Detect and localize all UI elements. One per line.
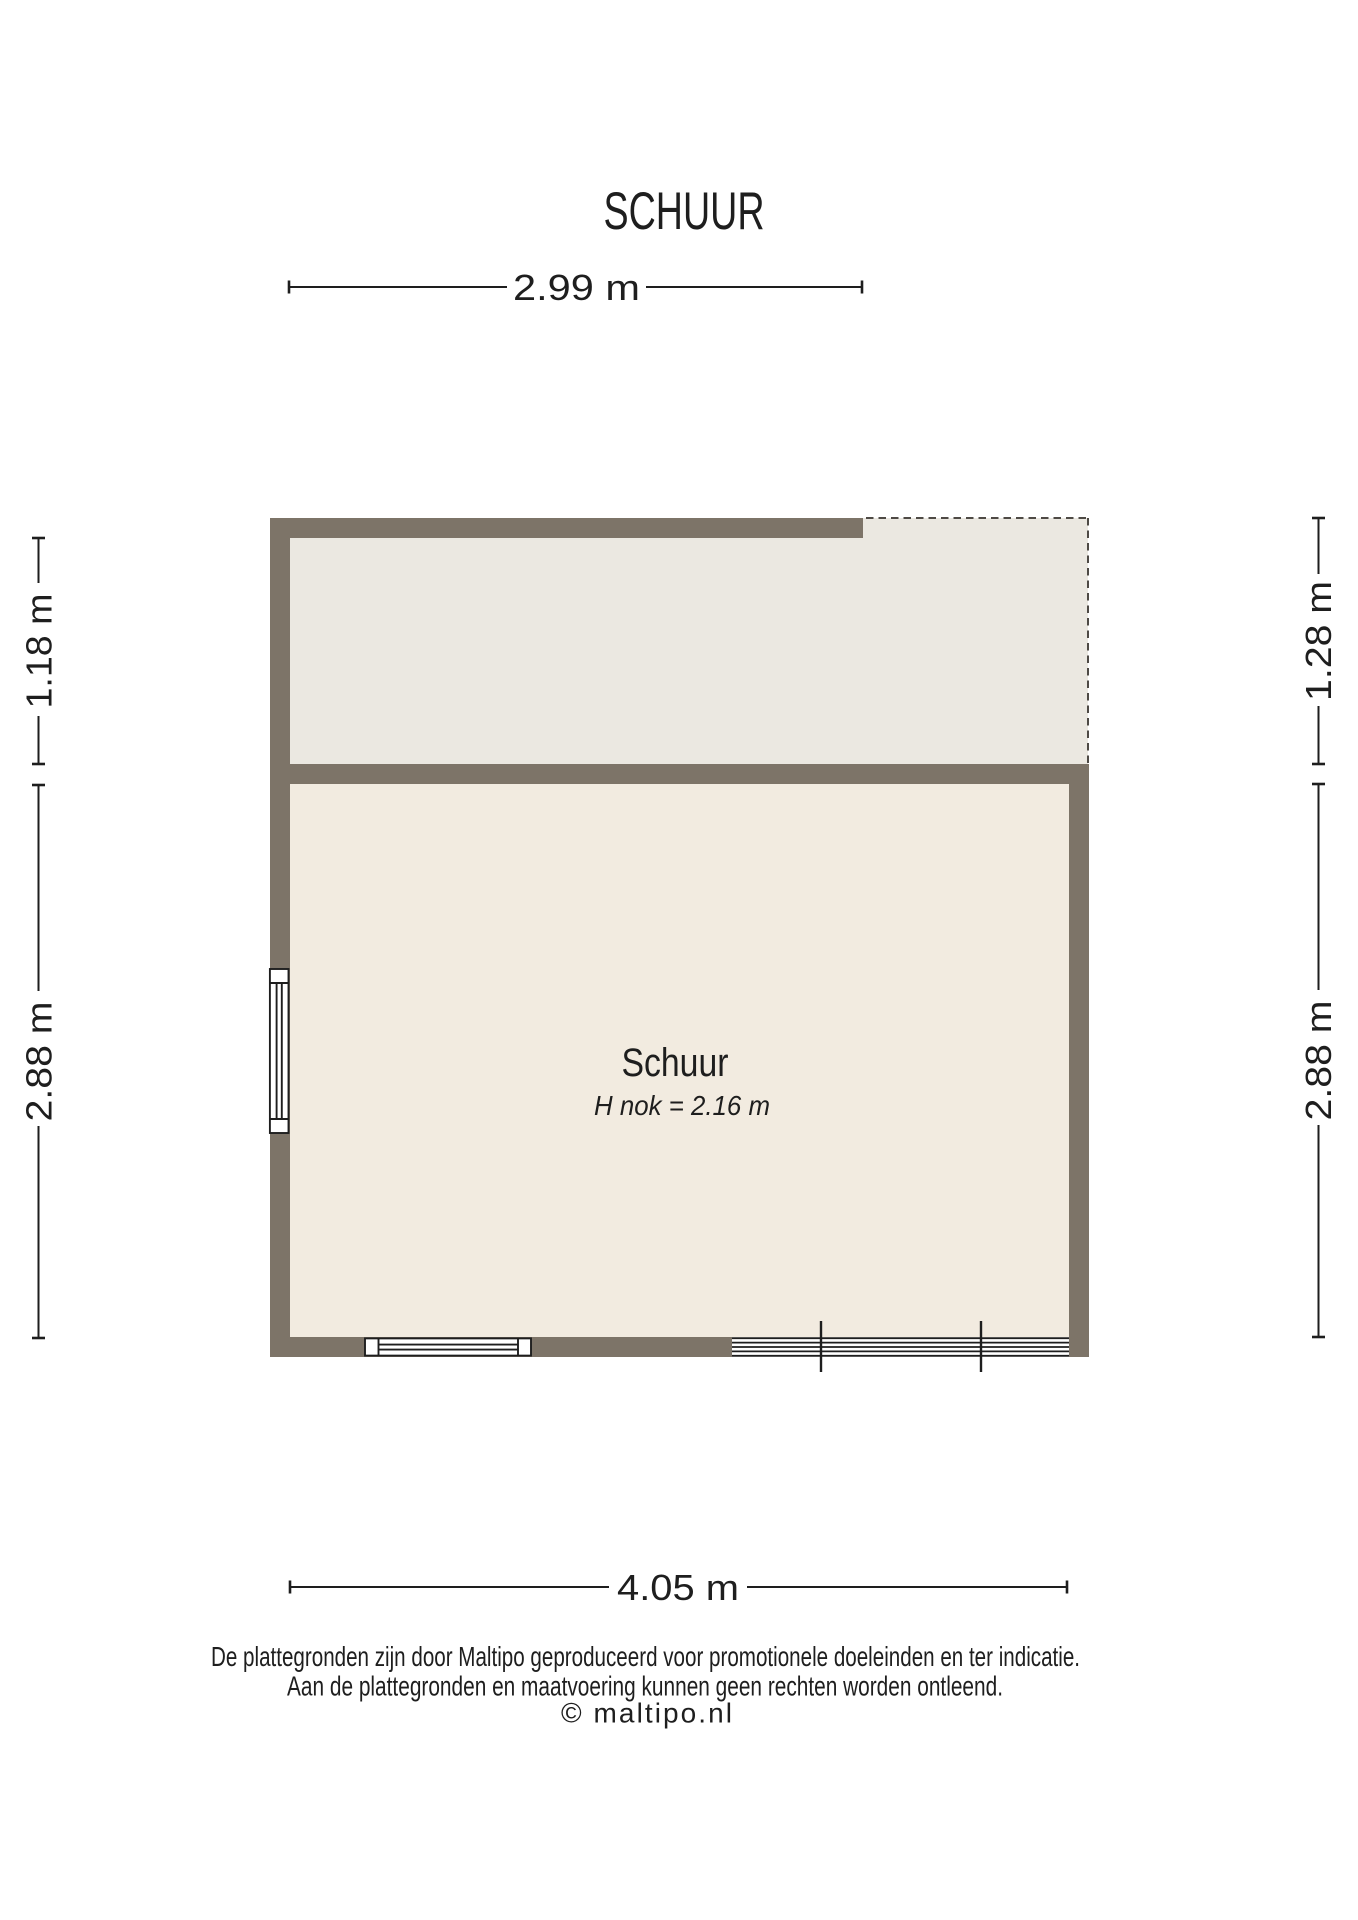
svg-text:De plattegronden zijn door Mal: De plattegronden zijn door Maltipo gepro… — [211, 1641, 1080, 1672]
svg-text:1.18 m: 1.18 m — [19, 594, 60, 709]
svg-text:2.88 m: 2.88 m — [1298, 1001, 1339, 1121]
svg-text:Schuur: Schuur — [622, 1041, 729, 1085]
svg-text:H nok = 2.16 m: H nok = 2.16 m — [594, 1090, 770, 1121]
svg-text:4.05 m: 4.05 m — [617, 1567, 739, 1608]
svg-text:2.99 m: 2.99 m — [513, 267, 640, 308]
svg-text:2.88 m: 2.88 m — [19, 1002, 60, 1122]
svg-text:1.28 m: 1.28 m — [1298, 581, 1339, 701]
svg-text:SCHUUR: SCHUUR — [604, 182, 765, 241]
